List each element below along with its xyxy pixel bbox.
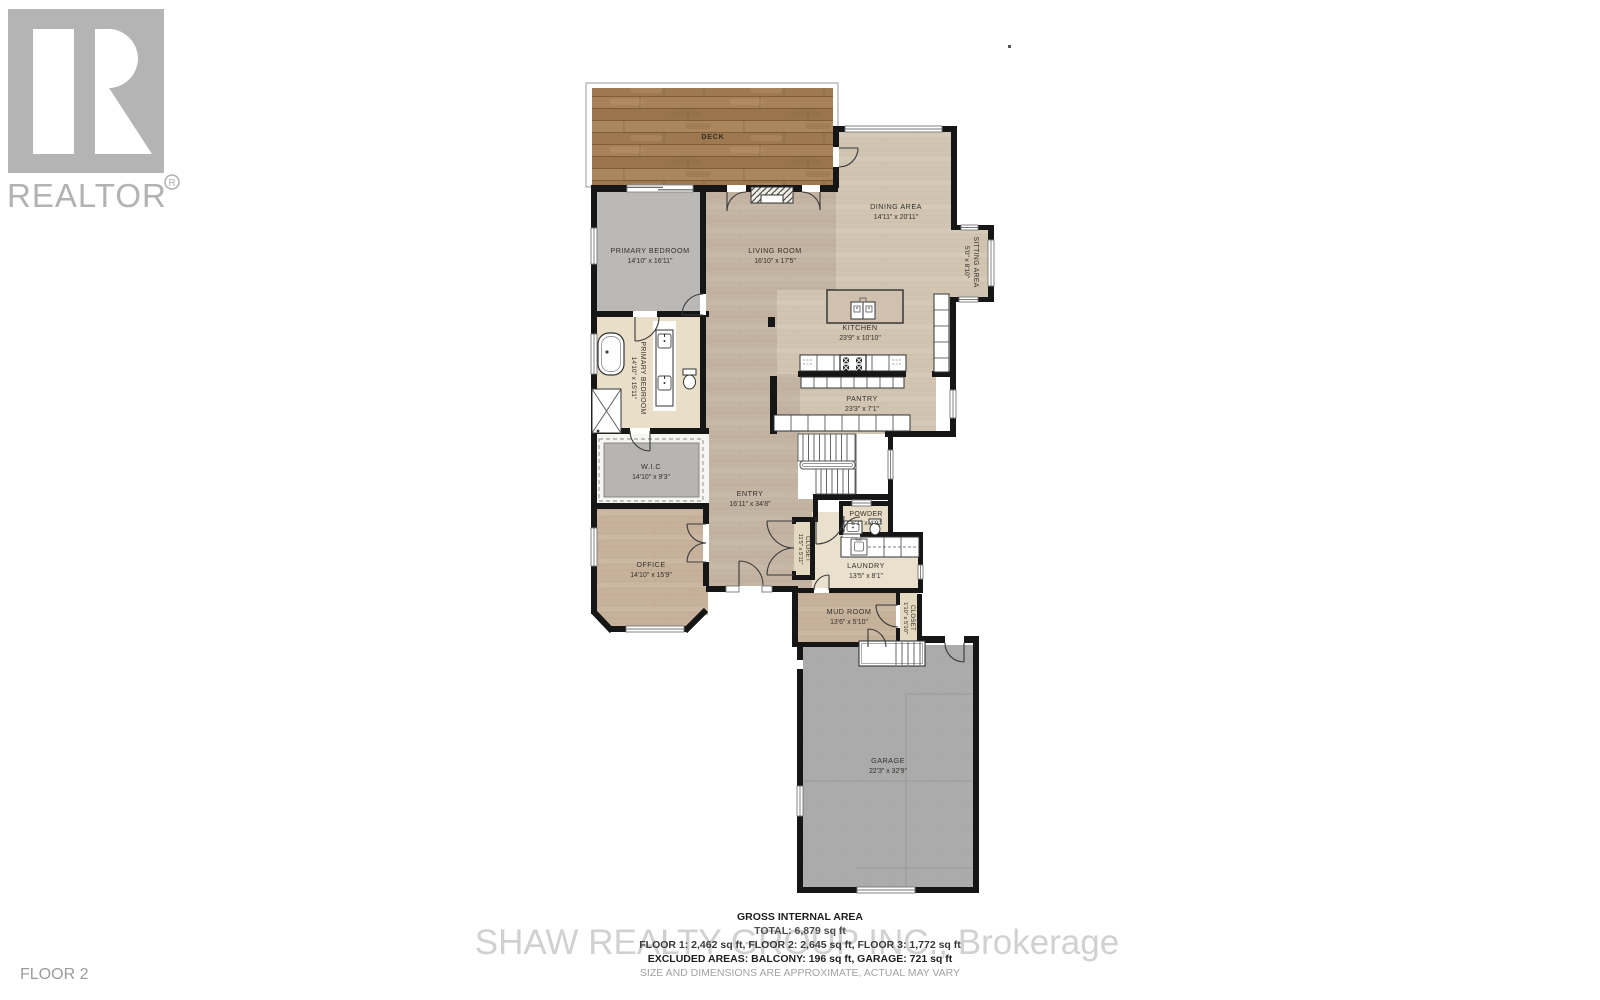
svg-text:MUD ROOM: MUD ROOM [827,607,872,616]
svg-text:LIVING ROOM: LIVING ROOM [748,246,801,255]
svg-text:1'10" x 5'10": 1'10" x 5'10" [902,602,908,634]
svg-text:FLOOR 1: 2,462 sq ft, FLOOR 2:: FLOOR 1: 2,462 sq ft, FLOOR 2: 2,645 sq … [639,939,961,951]
svg-text:14'10" x 9'3": 14'10" x 9'3" [632,474,670,481]
svg-text:11'5" x 5'11": 11'5" x 5'11" [797,534,803,565]
svg-text:LAUNDRY: LAUNDRY [847,561,885,570]
svg-text:DECK: DECK [701,132,724,141]
svg-text:13'5" x 8'1": 13'5" x 8'1" [849,573,884,580]
svg-text:W.I.C: W.I.C [641,462,661,471]
svg-text:6'1" x 4'9": 6'1" x 4'9" [851,520,881,527]
svg-text:CLOSET: CLOSET [909,605,916,631]
svg-text:GROSS INTERNAL AREA: GROSS INTERNAL AREA [737,911,863,923]
svg-text:CLOSET: CLOSET [804,536,811,562]
svg-text:EXCLUDED AREAS: BALCONY: 196 s: EXCLUDED AREAS: BALCONY: 196 sq ft, GARA… [648,953,953,965]
svg-text:SITTING AREA: SITTING AREA [972,236,979,287]
svg-text:POWDER: POWDER [849,511,882,518]
svg-text:GARAGE: GARAGE [871,756,905,765]
svg-text:16'11" x 34'8": 16'11" x 34'8" [729,501,771,508]
svg-text:ENTRY: ENTRY [737,489,764,498]
svg-text:13'6" x 5'10": 13'6" x 5'10" [830,619,868,626]
svg-text:OFFICE: OFFICE [636,560,665,569]
svg-text:KITCHEN: KITCHEN [842,323,877,332]
svg-text:DINING AREA: DINING AREA [870,202,922,211]
svg-text:5'0" x 8'10": 5'0" x 8'10" [963,246,970,279]
svg-text:16'10" x 17'5": 16'10" x 17'5" [754,258,796,265]
svg-text:PRIMARY BEDROOM: PRIMARY BEDROOM [639,341,646,414]
svg-text:REALTOR: REALTOR [7,177,167,214]
svg-text:14'10" x 16'11": 14'10" x 16'11" [628,258,673,265]
svg-text:14'10" x 15'11": 14'10" x 15'11" [630,357,637,400]
svg-text:23'3" x 7'1": 23'3" x 7'1" [845,406,880,413]
svg-text:PRIMARY BEDROOM: PRIMARY BEDROOM [610,246,689,255]
svg-text:22'3" x 32'9": 22'3" x 32'9" [869,768,907,775]
svg-text:TOTAL: 6,879 sq ft: TOTAL: 6,879 sq ft [754,925,846,937]
svg-text:SIZE AND DIMENSIONS ARE APPROX: SIZE AND DIMENSIONS ARE APPROXIMATE, ACT… [640,967,960,979]
svg-text:14'11" x 20'11": 14'11" x 20'11" [874,214,919,221]
svg-text:PANTRY: PANTRY [846,394,878,403]
svg-text:FLOOR 2: FLOOR 2 [20,966,89,983]
svg-text:R: R [168,178,175,189]
svg-text:14'10" x 15'9": 14'10" x 15'9" [630,572,672,579]
svg-text:23'9" x 10'10": 23'9" x 10'10" [839,335,881,342]
